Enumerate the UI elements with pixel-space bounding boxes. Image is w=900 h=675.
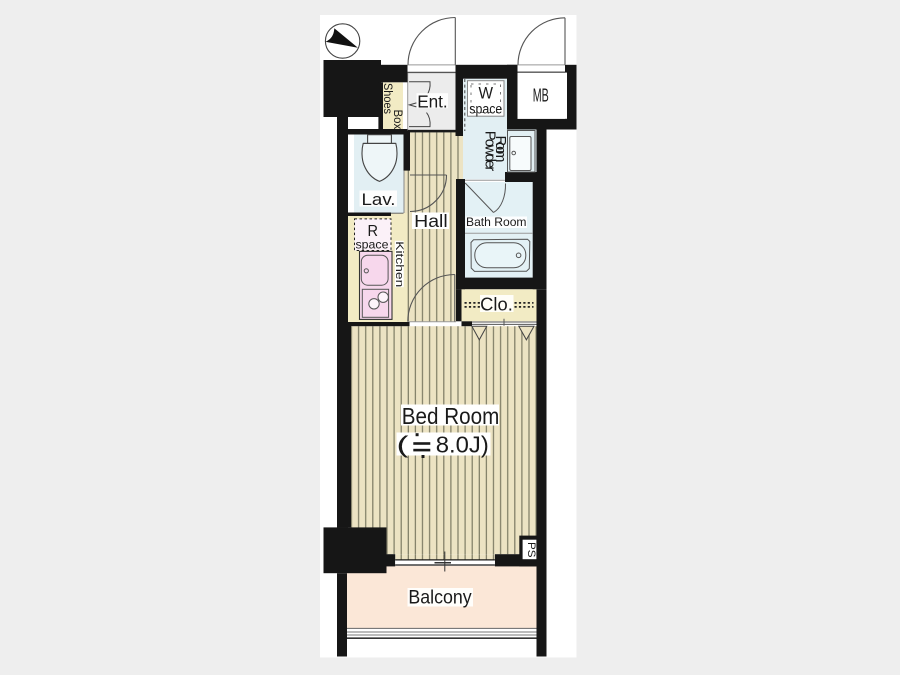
svg-text:Clo.: Clo. [480,295,513,315]
svg-text:(: ( [397,432,409,458]
svg-text:Bath Room: Bath Room [466,215,527,229]
svg-text:space: space [356,237,389,251]
svg-text:8.0J): 8.0J) [436,432,489,458]
svg-text:Bed Room: Bed Room [402,403,500,429]
svg-text:Ent.: Ent. [417,92,448,112]
svg-text:MB: MB [533,84,549,105]
svg-text:Hall: Hall [414,211,448,231]
svg-text:Kitchen: Kitchen [393,241,405,287]
svg-text:W: W [478,84,493,103]
svg-text:Balcony: Balcony [408,587,472,609]
svg-text:PS: PS [525,542,537,558]
svg-text:Room: Room [492,136,508,163]
svg-text:Lav.: Lav. [362,190,396,209]
svg-text:space: space [469,102,502,117]
svg-text:Box: Box [391,110,403,130]
